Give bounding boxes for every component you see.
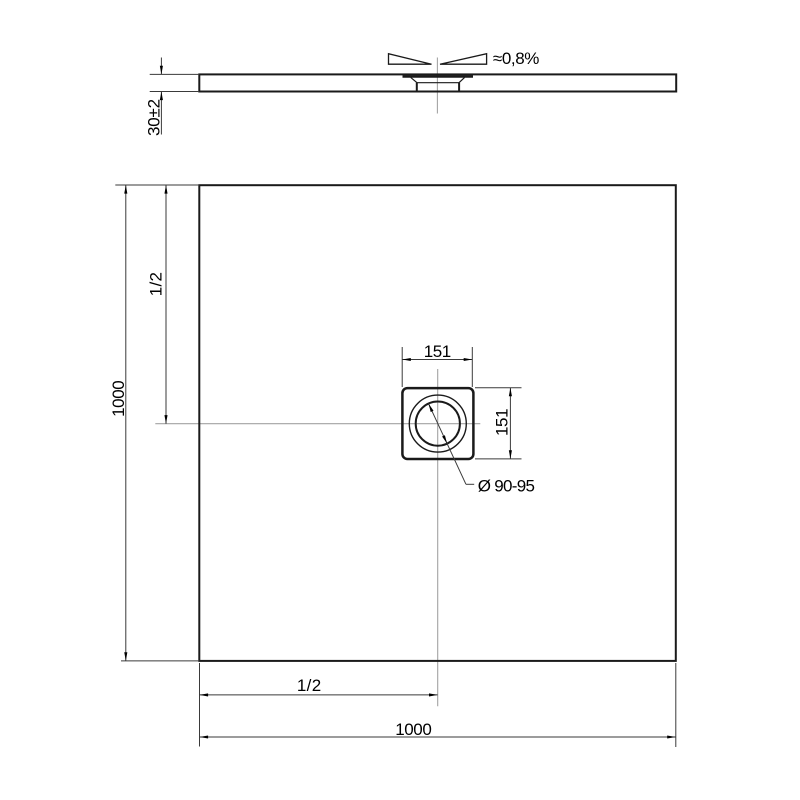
svg-text:151: 151 [492, 409, 511, 436]
svg-text:1/2: 1/2 [147, 272, 166, 297]
svg-text:1000: 1000 [395, 720, 431, 739]
svg-text:1/2: 1/2 [297, 676, 322, 695]
svg-text:1000: 1000 [109, 381, 128, 417]
svg-text:≈0,8%: ≈0,8% [493, 49, 539, 68]
svg-text:151: 151 [424, 342, 451, 361]
svg-text:Ø 90-95: Ø 90-95 [478, 476, 535, 495]
svg-text:30±2: 30±2 [145, 99, 164, 136]
